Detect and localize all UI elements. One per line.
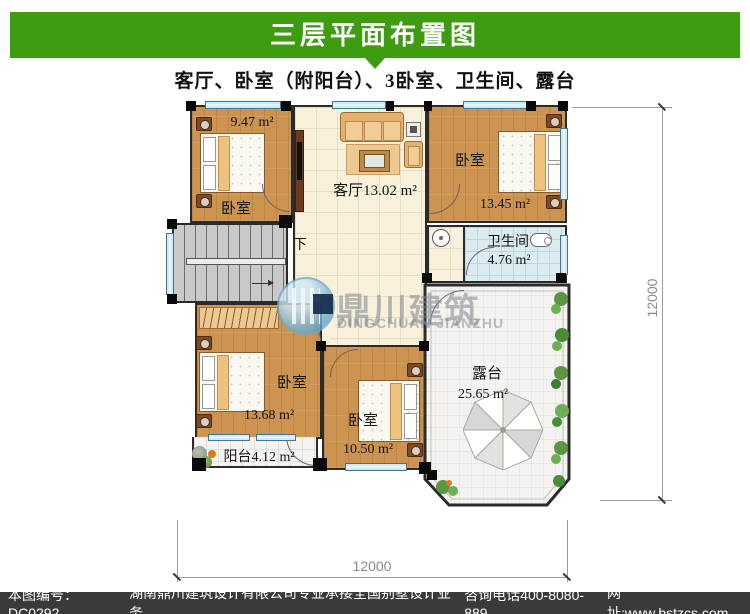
footer-phone: 咨询电话400-8080-889: [464, 585, 607, 614]
window: [345, 463, 407, 471]
dim-extension-line: [177, 520, 178, 582]
area-label-terrace: 25.65 m²: [443, 387, 523, 403]
window: [205, 101, 281, 109]
page-title: 三层平面布置图: [10, 12, 740, 58]
armchair: [404, 141, 423, 168]
column-marker: [167, 294, 177, 304]
area-label-bedroom-tl: 9.47 m²: [212, 115, 292, 131]
rug: [346, 144, 400, 175]
column-marker: [424, 101, 432, 111]
column-marker: [186, 101, 196, 111]
stairs-down-label: 下: [290, 234, 310, 254]
footer-plan-number: 本图编号：DC0292: [8, 585, 129, 614]
column-marker: [526, 101, 536, 111]
watermark-logo-block-icon: [313, 294, 333, 314]
area-label-bathroom: 4.76 m²: [476, 253, 542, 269]
window: [256, 434, 296, 441]
sink: [432, 229, 450, 247]
nightstand: [546, 114, 562, 128]
column-marker: [313, 458, 327, 471]
area-label-bedroom-tr: 13.45 m²: [463, 197, 547, 213]
column-marker: [279, 215, 292, 228]
dim-extension-line: [572, 107, 672, 108]
stair-handrail: [186, 258, 286, 265]
nightstand: [196, 117, 212, 131]
window: [208, 434, 250, 441]
window: [463, 101, 527, 109]
footer-company: 湖南鼎川建筑设计有限公司专业承接全国别墅设计业务: [129, 583, 464, 614]
window: [560, 235, 568, 275]
window: [332, 101, 386, 109]
dim-line-right: [662, 107, 663, 501]
room-label-bedroom-bl: 卧室: [263, 371, 321, 392]
room-label-terrace: 露台: [455, 362, 519, 383]
column-marker: [422, 273, 432, 283]
room-label-balcony: 阳台4.12 m²: [203, 446, 315, 466]
footer-website: 网址:www.bstzcs.com: [607, 583, 742, 614]
dim-value-right: 12000: [644, 268, 660, 328]
room-label-bedroom-tr: 卧室: [440, 149, 500, 170]
side-table: [406, 122, 421, 137]
column-marker: [427, 470, 437, 480]
window: [560, 128, 568, 200]
room-label-bedroom-bc: 卧室: [334, 409, 392, 430]
nightstand: [196, 414, 212, 428]
footer-bar: 本图编号：DC0292 湖南鼎川建筑设计有限公司专业承接全国别墅设计业务 咨询电…: [0, 592, 750, 614]
column-marker: [558, 101, 568, 111]
column-marker: [419, 341, 429, 351]
tv: [297, 142, 302, 180]
room-label-bathroom: 卫生间: [473, 231, 543, 251]
bed: [199, 352, 265, 412]
sofa: [340, 112, 404, 142]
dim-extension-line: [567, 520, 568, 582]
column-marker: [556, 273, 566, 283]
floorplan-poster: 三层平面布置图 客厅、卧室（附阳台）、3卧室、卫生间、露台: [0, 0, 750, 614]
watermark-en: DINGCHUAN JIANZHU: [337, 315, 507, 331]
page-subtitle: 客厅、卧室（附阳台）、3卧室、卫生间、露台: [0, 66, 750, 93]
area-label-bedroom-bl: 13.68 m²: [226, 408, 312, 424]
dim-value-bottom: 12000: [327, 558, 417, 574]
wardrobe: [199, 307, 279, 329]
stair-arrow-icon: ▶: [268, 278, 274, 287]
window: [166, 233, 174, 295]
column-marker: [386, 101, 394, 111]
room-label-living: 客厅13.02 m²: [315, 179, 435, 200]
nightstand: [196, 336, 212, 350]
area-label-bedroom-bc: 10.50 m²: [326, 442, 410, 458]
dim-line-bottom: [177, 577, 568, 578]
nightstand: [407, 363, 423, 377]
column-marker: [316, 341, 326, 351]
column-marker: [167, 219, 177, 229]
bed: [200, 133, 265, 193]
column-marker: [281, 101, 291, 111]
room-label-bedroom-tl: 卧室: [206, 197, 266, 218]
bed: [498, 131, 564, 193]
